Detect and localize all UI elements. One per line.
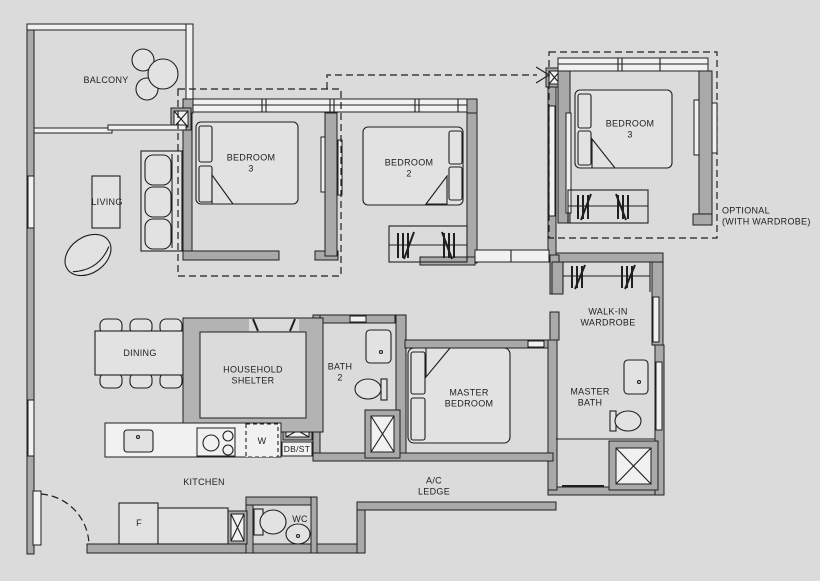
- label-bedroom3-optional: BEDROOM3: [606, 119, 655, 140]
- floor-plan: BALCONY LIVING DINING BEDROOM3 BEDROOM2 …: [0, 0, 820, 581]
- label-washer: W: [258, 436, 267, 447]
- label-bedroom3: BEDROOM3: [227, 153, 276, 174]
- label-kitchen: KITCHEN: [183, 477, 225, 488]
- floor-plan-drawing: [0, 0, 820, 581]
- balcony-furniture: [34, 49, 186, 133]
- label-ac-ledge: A/CLEDGE: [418, 476, 450, 497]
- label-living: LIVING: [91, 197, 122, 208]
- label-walk-in-wardrobe: WALK-INWARDROBE: [580, 307, 635, 328]
- label-master-bedroom: MASTERBEDROOM: [445, 388, 494, 409]
- label-dining: DINING: [123, 348, 156, 359]
- optional-bedroom3-inset: [558, 58, 717, 225]
- label-household-shelter: HOUSEHOLDSHELTER: [223, 365, 283, 386]
- shower-bath2: [365, 410, 400, 458]
- armchair: [57, 226, 119, 284]
- master-bath-fixtures: [610, 360, 648, 431]
- label-bath2: BATH2: [328, 362, 353, 383]
- label-db-st: DB/ST: [284, 444, 311, 455]
- label-balcony: BALCONY: [83, 75, 128, 86]
- living-furniture: [57, 151, 182, 284]
- bath2-fixtures: [355, 330, 391, 400]
- kitchen-riser-2: [228, 511, 247, 544]
- label-wc: WC: [292, 514, 308, 525]
- label-fridge: F: [136, 518, 142, 529]
- wardrobe-walk-in: [563, 262, 650, 292]
- wardrobe-bedroom3-optional: [568, 190, 648, 223]
- label-master-bath: MASTERBATH: [570, 387, 609, 408]
- shower-master-bath: [556, 439, 658, 490]
- label-bedroom2: BEDROOM2: [385, 158, 434, 179]
- label-optional-note: OPTIONAL(WITH WARDROBE): [722, 206, 811, 227]
- entry-door: [33, 491, 89, 545]
